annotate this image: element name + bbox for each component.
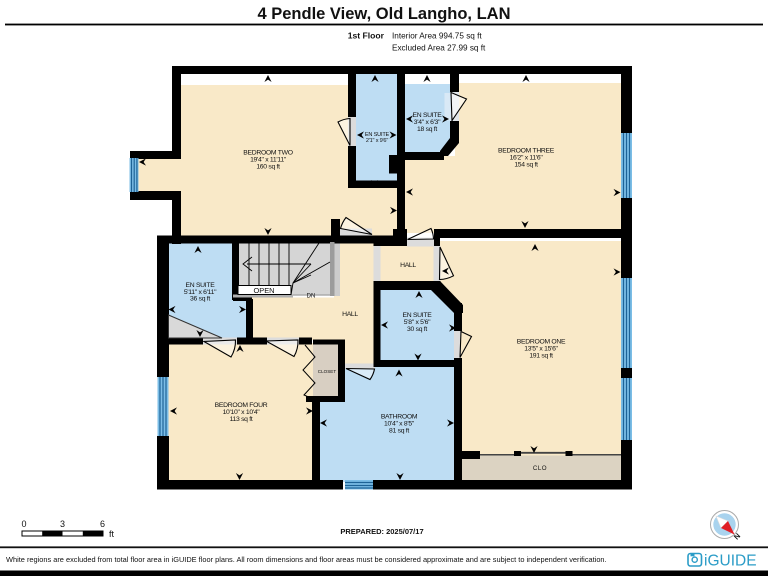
svg-text:OPEN: OPEN (254, 286, 275, 295)
svg-text:18 sq ft: 18 sq ft (417, 126, 437, 133)
svg-text:iGUIDE: iGUIDE (704, 553, 757, 570)
svg-text:2'1" x 9'6": 2'1" x 9'6" (366, 138, 388, 144)
svg-text:EN SUITE: EN SUITE (403, 312, 433, 319)
svg-text:81 sq ft: 81 sq ft (389, 428, 409, 435)
svg-text:EN SUITE: EN SUITE (186, 282, 216, 289)
svg-text:0: 0 (21, 519, 26, 529)
svg-text:6: 6 (100, 519, 105, 529)
svg-text:HALL: HALL (342, 311, 358, 318)
svg-text:BEDROOM FOUR: BEDROOM FOUR (215, 402, 268, 409)
svg-text:Interior Area 994.75 sq ft: Interior Area 994.75 sq ft (392, 31, 482, 40)
svg-text:ft: ft (109, 529, 115, 539)
svg-text:HALL: HALL (400, 262, 416, 269)
svg-text:BEDROOM TWO: BEDROOM TWO (243, 150, 292, 157)
svg-text:3: 3 (60, 519, 65, 529)
svg-text:30 sq ft: 30 sq ft (407, 326, 427, 333)
svg-text:PREPARED: 2025/07/17: PREPARED: 2025/07/17 (340, 527, 423, 536)
svg-text:BEDROOM THREE: BEDROOM THREE (498, 148, 555, 155)
svg-text:160 sq ft: 160 sq ft (256, 164, 280, 171)
svg-text:191 sq ft: 191 sq ft (529, 353, 553, 360)
svg-text:5'8" x 5'6": 5'8" x 5'6" (404, 319, 431, 326)
svg-text:DN: DN (307, 294, 316, 300)
svg-text:CLOSET: CLOSET (318, 369, 337, 374)
svg-text:10'10" x 10'4": 10'10" x 10'4" (223, 409, 261, 416)
svg-text:BATHROOM: BATHROOM (381, 414, 418, 421)
svg-text:10'4" x 8'5": 10'4" x 8'5" (384, 421, 415, 428)
svg-text:13'5" x 15'6": 13'5" x 15'6" (524, 346, 558, 353)
svg-text:4 Pendle View, Old Langho, LAN: 4 Pendle View, Old Langho, LAN (257, 5, 510, 23)
svg-text:1st Floor: 1st Floor (348, 30, 385, 40)
svg-text:BEDROOM ONE: BEDROOM ONE (517, 339, 566, 346)
svg-text:154 sq ft: 154 sq ft (514, 162, 538, 169)
svg-text:36 sq ft: 36 sq ft (190, 296, 210, 303)
svg-text:Excluded Area 27.99 sq ft: Excluded Area 27.99 sq ft (392, 43, 486, 52)
svg-text:3'4" x 6'3": 3'4" x 6'3" (414, 119, 441, 126)
svg-text:CLO: CLO (533, 465, 547, 472)
svg-text:113 sq ft: 113 sq ft (230, 416, 253, 423)
svg-text:White regions are excluded fro: White regions are excluded from total fl… (6, 555, 607, 564)
svg-text:19'4" x 11'11": 19'4" x 11'11" (250, 157, 287, 164)
svg-text:16'2" x 11'6": 16'2" x 11'6" (510, 155, 544, 162)
svg-text:EN SUITE: EN SUITE (413, 112, 443, 119)
